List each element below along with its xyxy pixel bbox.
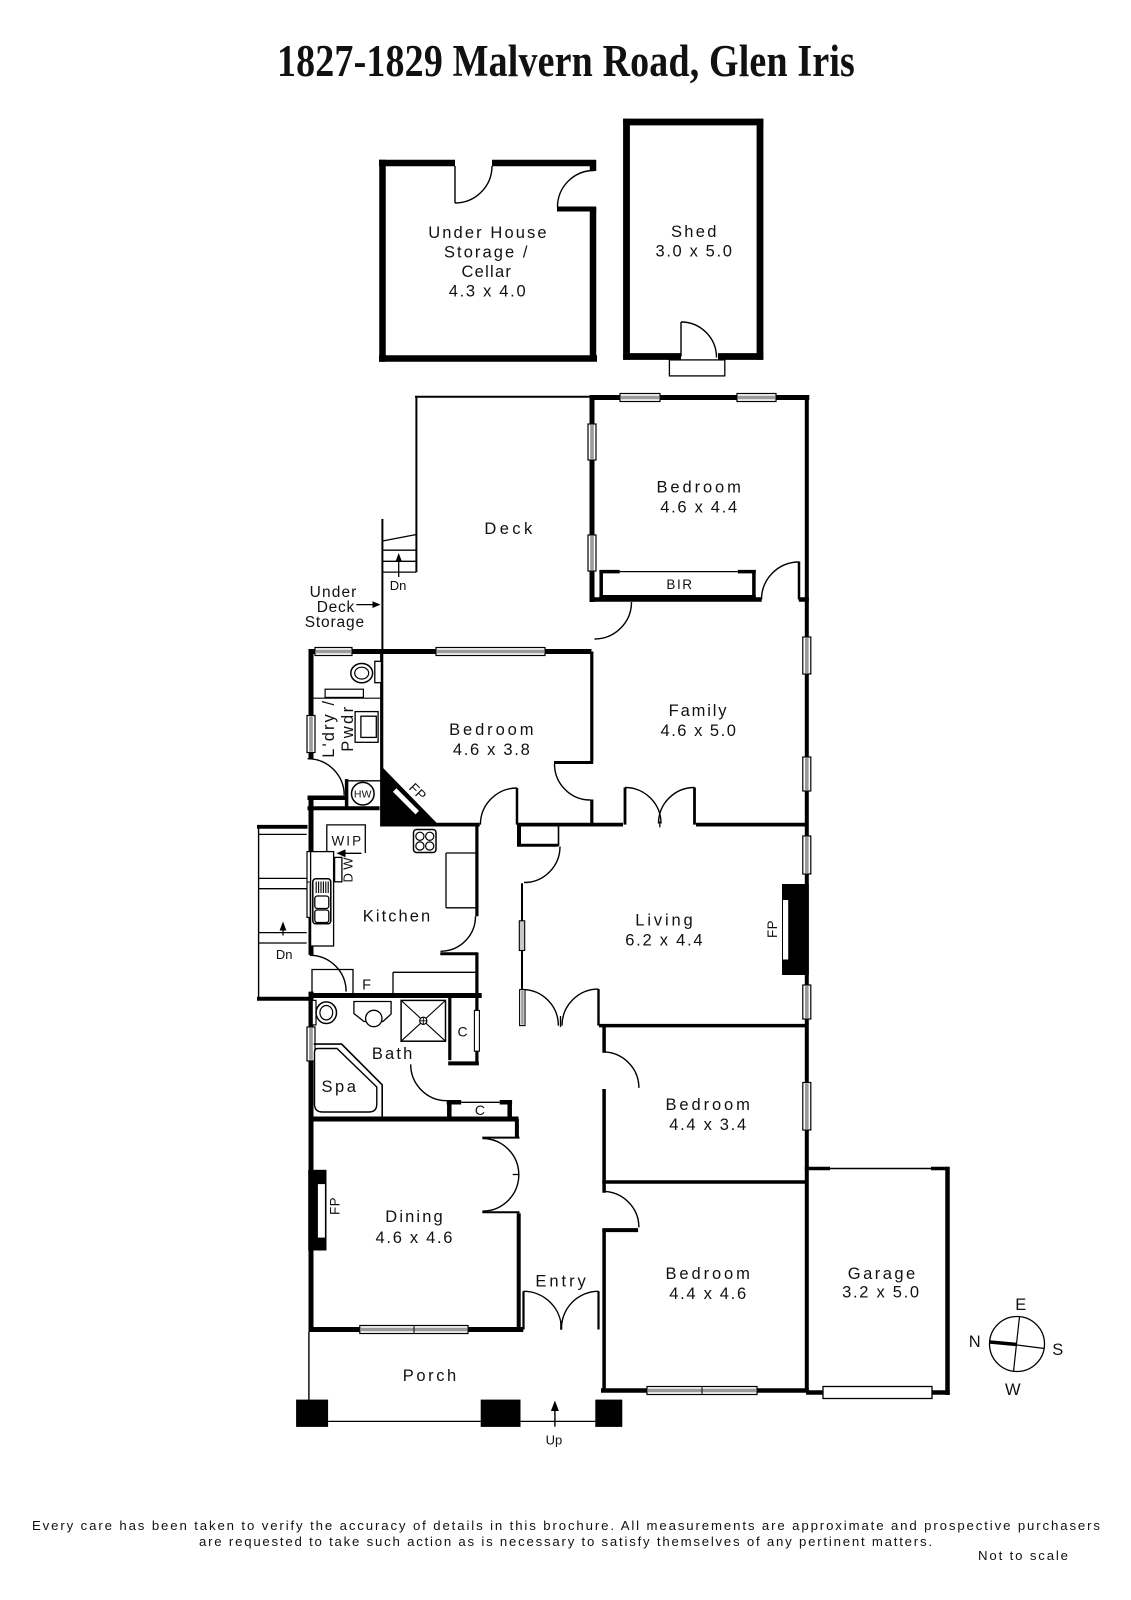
svg-text:4.6 x 5.0: 4.6 x 5.0 xyxy=(661,722,737,740)
svg-text:4.6 x 4.6: 4.6 x 4.6 xyxy=(376,1229,454,1247)
svg-text:S: S xyxy=(1052,1341,1064,1359)
svg-text:N: N xyxy=(969,1333,981,1351)
svg-text:E: E xyxy=(1015,1296,1027,1314)
svg-text:Dn: Dn xyxy=(276,947,293,962)
svg-text:HW: HW xyxy=(354,789,372,801)
svg-text:BIR: BIR xyxy=(666,577,692,592)
svg-text:Up: Up xyxy=(546,1433,563,1448)
svg-text:C: C xyxy=(457,1024,467,1040)
svg-text:L'dry /: L'dry / xyxy=(320,700,338,757)
svg-text:Under House: Under House xyxy=(428,224,547,242)
svg-text:Cellar: Cellar xyxy=(462,263,512,281)
svg-text:3.2 x 5.0: 3.2 x 5.0 xyxy=(842,1284,920,1302)
svg-text:Deck: Deck xyxy=(484,520,533,538)
svg-text:Bath: Bath xyxy=(372,1045,413,1063)
svg-text:FP: FP xyxy=(328,1197,343,1215)
svg-text:Family: Family xyxy=(669,702,728,720)
svg-text:W: W xyxy=(1005,1381,1021,1399)
svg-text:Pwdr: Pwdr xyxy=(339,706,357,751)
svg-text:Dining: Dining xyxy=(385,1208,443,1226)
svg-text:Kitchen: Kitchen xyxy=(363,908,431,926)
svg-text:3.0 x 5.0: 3.0 x 5.0 xyxy=(656,243,733,261)
svg-text:4.6 x 4.4: 4.6 x 4.4 xyxy=(660,499,738,517)
svg-text:Storage /: Storage / xyxy=(444,244,528,262)
svg-text:Spa: Spa xyxy=(322,1078,357,1096)
svg-text:Dn: Dn xyxy=(390,578,407,593)
svg-text:Shed: Shed xyxy=(671,223,717,241)
svg-text:C: C xyxy=(475,1102,485,1118)
svg-text:Storage: Storage xyxy=(305,614,364,631)
svg-text:4.4 x 4.6: 4.4 x 4.6 xyxy=(669,1285,747,1303)
svg-text:DW: DW xyxy=(341,857,356,883)
svg-text:4.3 x 4.0: 4.3 x 4.0 xyxy=(449,283,527,301)
svg-text:Porch: Porch xyxy=(403,1367,457,1385)
svg-text:Garage: Garage xyxy=(848,1265,916,1283)
svg-text:Living: Living xyxy=(635,912,693,930)
svg-text:Entry: Entry xyxy=(535,1273,586,1291)
svg-text:WIP: WIP xyxy=(332,834,362,849)
svg-text:FP: FP xyxy=(765,920,780,938)
svg-text:F: F xyxy=(362,978,371,994)
svg-text:6.2 x 4.4: 6.2 x 4.4 xyxy=(625,932,703,950)
svg-text:4.4 x 3.4: 4.4 x 3.4 xyxy=(669,1116,747,1134)
svg-text:1827-1829 Malvern Road, Glen I: 1827-1829 Malvern Road, Glen Iris xyxy=(277,36,855,86)
svg-text:4.6 x 3.8: 4.6 x 3.8 xyxy=(453,741,530,759)
